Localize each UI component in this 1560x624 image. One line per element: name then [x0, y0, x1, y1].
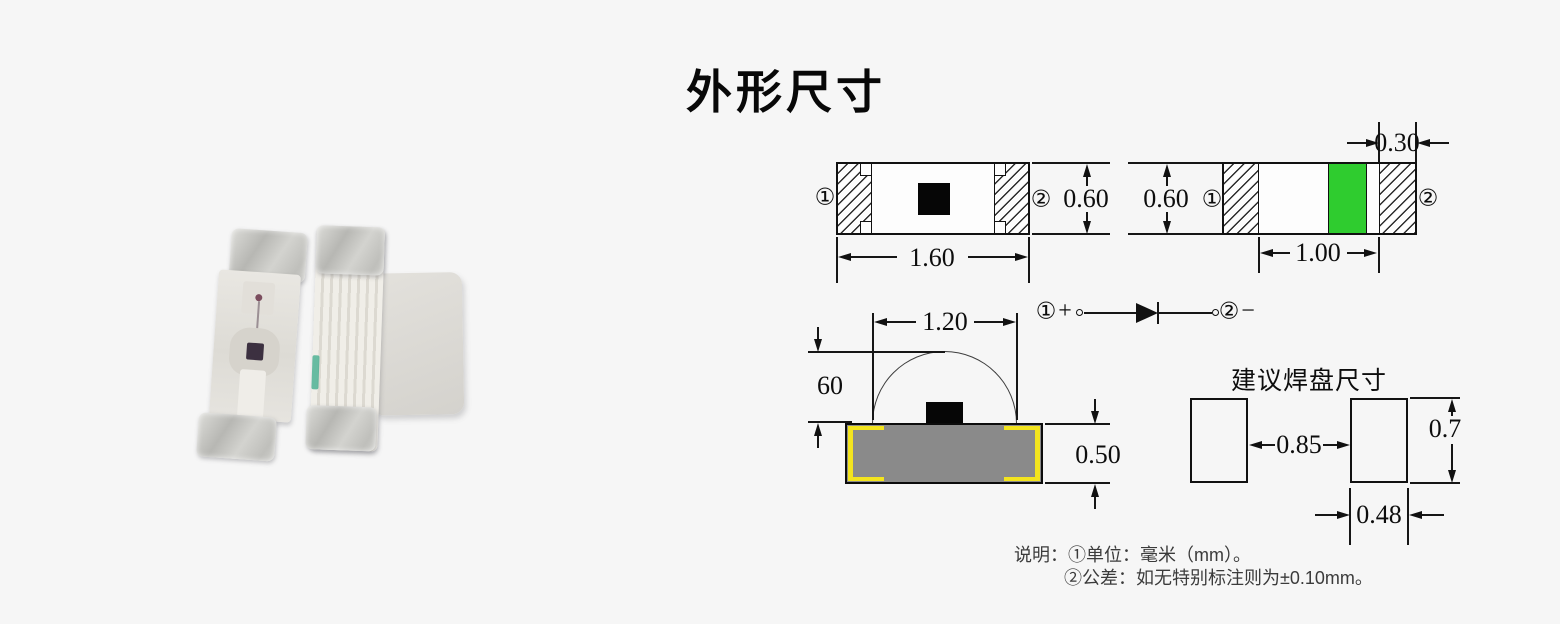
extension-line — [1032, 233, 1110, 235]
dim-side-body-height: 0.50 — [1075, 442, 1121, 468]
led-back-top-electrode — [315, 225, 385, 275]
top-view-notch — [995, 221, 1006, 233]
back-view-left-electrode-hatch — [1224, 164, 1259, 233]
dimension-line — [1094, 399, 1096, 411]
led-back-bottom-electrode — [305, 405, 376, 451]
dimension-line — [1262, 444, 1275, 446]
dimension-line — [974, 321, 1003, 323]
polarity-pin2-label: ② — [1219, 301, 1240, 324]
dim-side-dome-height: 60 — [817, 373, 843, 399]
dim-arrow — [1003, 318, 1016, 326]
top-view-pin1-label: ① — [815, 187, 836, 210]
dim-arrow — [1249, 441, 1262, 449]
dim-pad-gap: 0.85 — [1276, 432, 1322, 458]
polarity-terminal-dot — [1076, 309, 1083, 316]
dimension-line — [887, 321, 916, 323]
extension-line — [808, 351, 945, 353]
extension-line — [1045, 423, 1110, 425]
dim-arrow — [1448, 470, 1456, 483]
led-photo-front — [192, 226, 318, 463]
dimension-line — [1315, 514, 1337, 516]
dimension-line — [851, 256, 897, 258]
dim-arrow — [874, 318, 887, 326]
polarity-wire — [1159, 312, 1212, 314]
side-view-right-electrode — [1004, 426, 1040, 481]
extension-line — [1028, 237, 1030, 283]
dim-arrow — [814, 339, 822, 352]
extension-line — [1128, 162, 1222, 164]
top-view-pin2-label: ② — [1031, 189, 1052, 212]
dimension-line — [1094, 497, 1096, 509]
back-view-right-electrode-hatch — [1379, 164, 1415, 233]
polarity-plus-sign: + — [1058, 299, 1072, 323]
extension-line — [1378, 237, 1380, 273]
dimension-line — [1422, 514, 1444, 516]
pad-left — [1190, 398, 1248, 483]
dimension-line — [1430, 142, 1449, 144]
top-view-notch — [860, 164, 871, 176]
diode-symbol — [1136, 303, 1158, 323]
led-diffuser-tab — [370, 272, 464, 416]
top-view-die — [918, 183, 950, 215]
dim-arrow — [1163, 164, 1171, 177]
product-photo — [185, 222, 475, 467]
dim-top-width: 1.60 — [909, 245, 955, 271]
dim-arrow — [1091, 484, 1099, 497]
dim-back-mark-width: 0.30 — [1374, 130, 1420, 156]
dim-arrow — [1260, 249, 1273, 257]
dim-arrow — [1364, 249, 1377, 257]
dim-arrow — [814, 423, 822, 436]
dim-arrow — [1409, 511, 1422, 519]
dim-arrow — [1337, 511, 1350, 519]
back-view-green-mark — [1328, 164, 1367, 233]
pad-right — [1350, 398, 1408, 483]
top-view-notch — [860, 221, 871, 233]
datasheet-outline-drawing: 外形尺寸 ① ② 0.60 — [0, 0, 1560, 624]
page-title: 外形尺寸 — [686, 56, 886, 122]
dim-pad-width: 0.48 — [1356, 502, 1402, 528]
back-view-pin1-label: ① — [1202, 189, 1223, 212]
dim-arrow — [1083, 164, 1091, 177]
dim-arrow — [1091, 411, 1099, 424]
led-back-green-mark — [311, 355, 319, 389]
dim-arrow — [1163, 221, 1171, 234]
polarity-wire — [1084, 312, 1136, 314]
dimension-line — [817, 436, 819, 448]
dimension-line — [1451, 444, 1453, 470]
led-bottom-electrode — [196, 412, 277, 461]
dim-side-dome-width: 1.20 — [922, 309, 968, 335]
dimension-line — [1086, 212, 1088, 221]
polarity-minus-sign: − — [1241, 299, 1255, 323]
dim-arrow — [1083, 221, 1091, 234]
dim-arrow — [1337, 441, 1350, 449]
side-view-left-electrode — [848, 426, 884, 481]
extension-line — [1045, 482, 1110, 484]
dimension-line — [968, 256, 1015, 258]
led-lead-frame — [237, 369, 266, 421]
dim-pad-height: 0.7 — [1429, 416, 1462, 442]
note-tolerance: ②公差：如无特别标注则为±0.10mm。 — [1064, 564, 1373, 590]
dimension-line — [1166, 212, 1168, 221]
extension-line — [1128, 233, 1222, 235]
dim-back-height: 0.60 — [1143, 186, 1189, 212]
polarity-pin1-label: ① — [1036, 301, 1057, 324]
dimension-line — [1347, 252, 1364, 254]
dim-top-height: 0.60 — [1063, 186, 1109, 212]
pad-layout-title: 建议焊盘尺寸 — [1231, 361, 1387, 397]
led-photo-back — [309, 225, 477, 462]
dimension-line — [1347, 142, 1366, 144]
extension-line — [1016, 313, 1018, 420]
dim-arrow — [1015, 253, 1028, 261]
dimension-line — [1323, 444, 1337, 446]
dimension-line — [1273, 252, 1290, 254]
led-die — [246, 342, 264, 360]
extension-line — [872, 313, 874, 420]
dimension-line — [817, 327, 819, 339]
dim-back-inner-width: 1.00 — [1295, 240, 1341, 266]
top-view-notch — [995, 164, 1006, 176]
dim-arrow — [1448, 399, 1456, 412]
dim-arrow — [838, 253, 851, 261]
side-view-die — [926, 402, 963, 424]
extension-line — [1032, 162, 1110, 164]
back-view-pin2-label: ② — [1418, 188, 1439, 211]
